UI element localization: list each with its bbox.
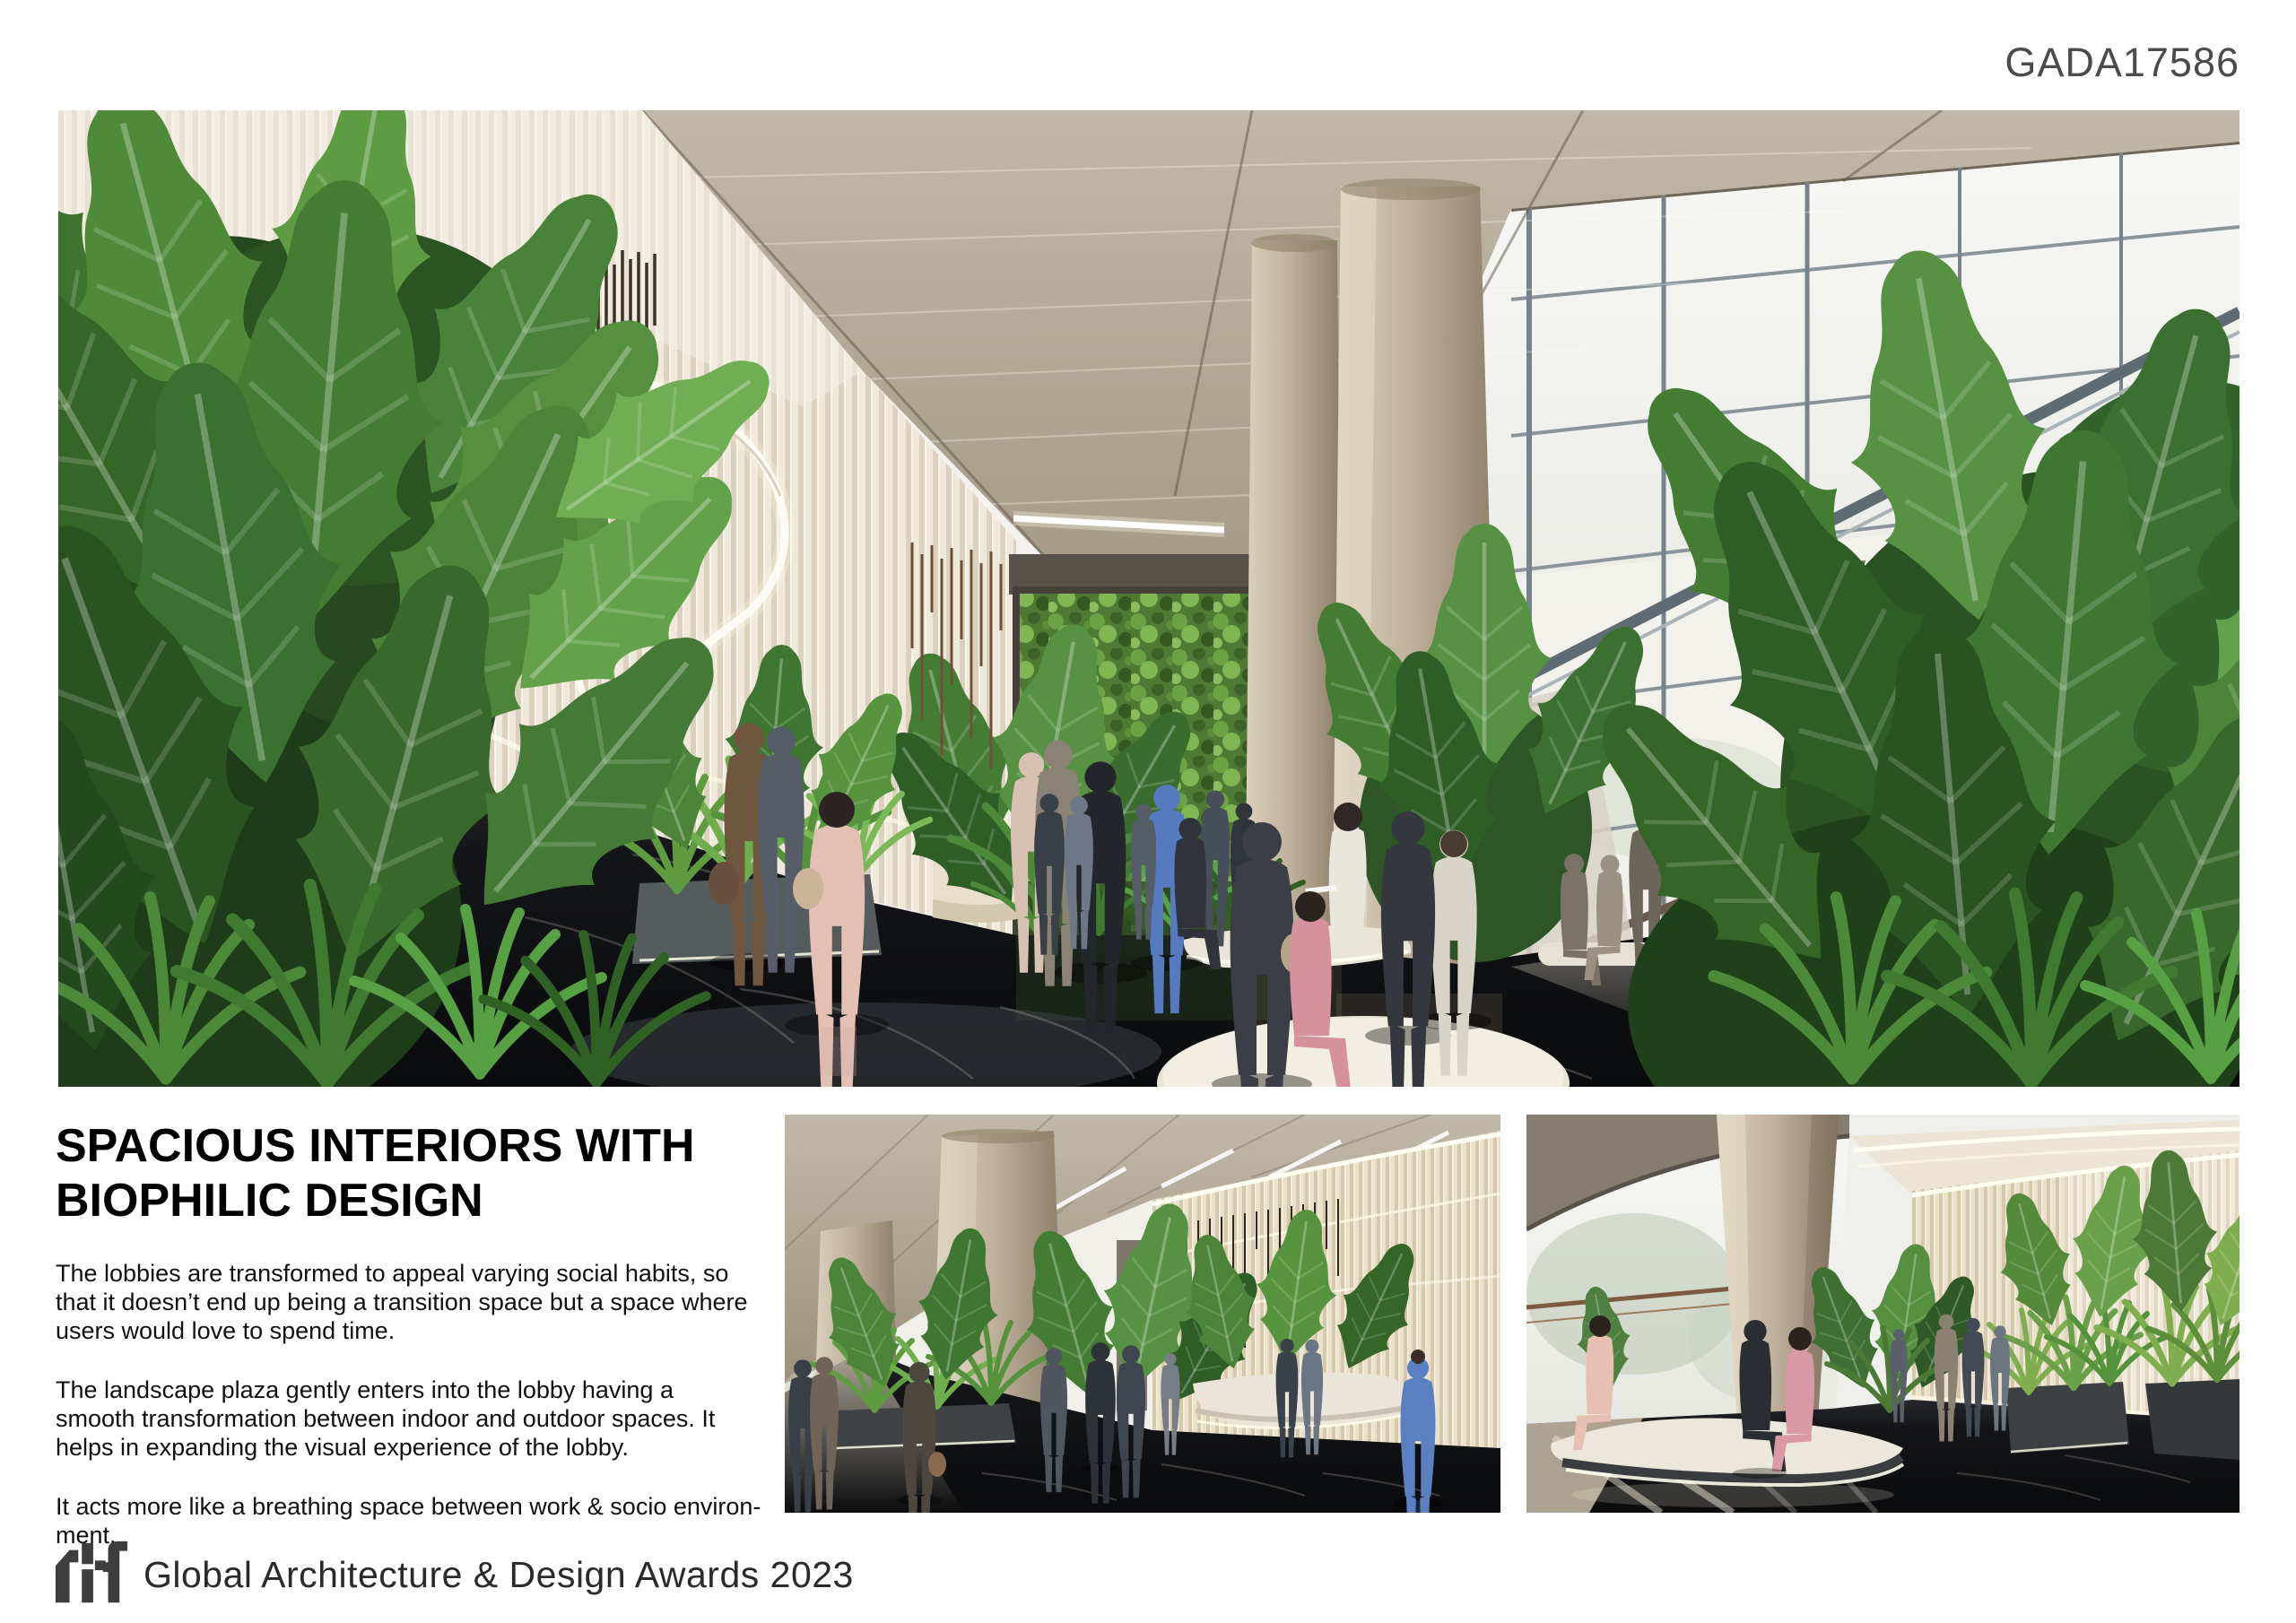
submission-code: GADA17586 [2005, 39, 2239, 86]
section-heading: SPACIOUS INTERIORS WITH BIOPHILIC DESIGN [56, 1119, 782, 1228]
hero-lobby-illustration [58, 110, 2239, 1087]
paragraph-1-line-2: that it doesn’t end up being a transitio… [56, 1288, 782, 1316]
paragraph-2-line-2: smooth transformation between indoor and… [56, 1404, 782, 1433]
award-title: Global Architecture & Design Awards 2023 [143, 1554, 854, 1596]
thumbnail-right-illustration [1526, 1115, 2239, 1513]
paragraph-2-line-1: The landscape plaza gently enters into t… [56, 1376, 782, 1404]
paragraph-3-line-1: It acts more like a breathing space betw… [56, 1492, 782, 1521]
thumbnail-mid-illustration [785, 1115, 1500, 1513]
heading-line-2: BIOPHILIC DESIGN [56, 1174, 782, 1228]
paragraph-1-line-1: The lobbies are transformed to appeal va… [56, 1259, 782, 1288]
thumbnail-lobby-reception [785, 1115, 1500, 1513]
footer: Global Architecture & Design Awards 2023 [52, 1539, 854, 1610]
thumbnail-lobby-seating [1526, 1115, 2239, 1513]
paragraph-1-line-3: users would love to spend time. [56, 1316, 782, 1345]
hero-image [58, 110, 2239, 1087]
paragraph-2: The landscape plaza gently enters into t… [56, 1376, 782, 1462]
rtf-logo-icon [52, 1539, 129, 1610]
paragraph-1: The lobbies are transformed to appeal va… [56, 1259, 782, 1345]
heading-line-1: SPACIOUS INTERIORS WITH [56, 1119, 782, 1174]
description-block: SPACIOUS INTERIORS WITH BIOPHILIC DESIGN… [56, 1119, 782, 1580]
paragraph-2-line-3: helps in expanding the visual experience… [56, 1433, 782, 1462]
presentation-page: GADA17586 [0, 0, 2296, 1623]
